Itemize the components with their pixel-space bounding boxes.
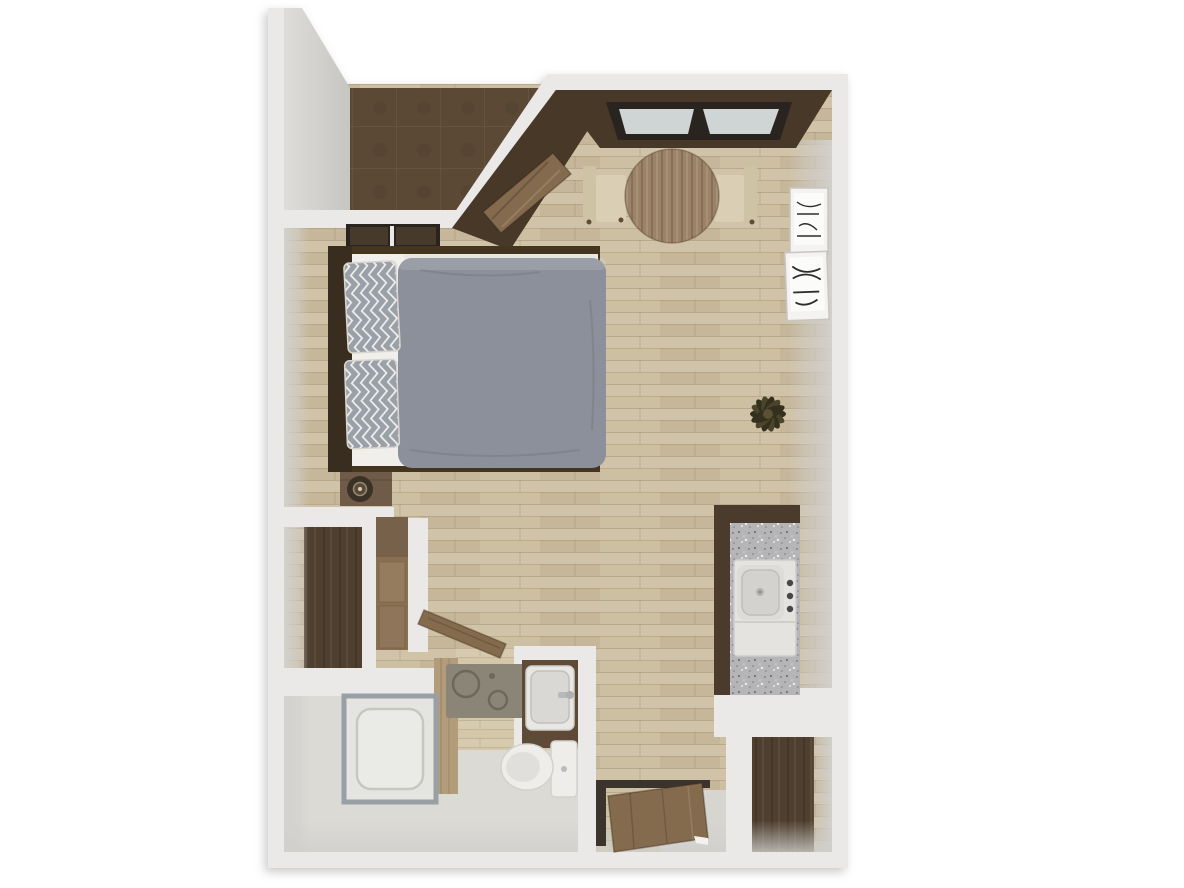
shower-tray-inner xyxy=(357,709,423,789)
outer-wall-left xyxy=(268,8,284,868)
vanity-nook-top-wall xyxy=(514,646,578,662)
sink-knob-2 xyxy=(787,593,793,599)
entry-closet-left-wall xyxy=(726,737,752,854)
chair-left-leg-2 xyxy=(619,218,624,223)
shower xyxy=(344,696,436,802)
floor-plan-stage xyxy=(0,0,1184,888)
bathroom-right-wall xyxy=(578,646,596,854)
closet-bottom-wall xyxy=(268,668,436,696)
bedroom-window-pane-right xyxy=(396,227,436,245)
left-wall-face xyxy=(284,212,310,852)
duvet-fold xyxy=(398,258,606,270)
chevron-pillow-bottom xyxy=(344,359,399,449)
bedroom-window-mullion xyxy=(390,226,394,246)
outer-wall-bottom xyxy=(268,852,848,868)
kitchenette xyxy=(714,505,800,695)
wardrobe-right-wall xyxy=(408,518,428,652)
counter-edge-left xyxy=(714,505,730,695)
outer-wall-top xyxy=(548,74,848,90)
chair-left-seat xyxy=(596,175,626,222)
wardrobe xyxy=(376,517,408,650)
toilet-flush-button xyxy=(561,766,567,772)
kitchen-sink-unit xyxy=(734,560,796,656)
kitchen-bottom-wall xyxy=(714,688,832,737)
sink-knob-1 xyxy=(787,580,793,586)
vanity xyxy=(522,660,578,748)
wall-art xyxy=(785,188,829,321)
entry-door-jamb xyxy=(596,780,606,846)
art-frame-bottom xyxy=(785,251,829,320)
art-frame-top xyxy=(790,188,828,254)
wardrobe-panel-2 xyxy=(379,606,405,648)
chair-right-leg xyxy=(750,220,755,225)
rug-dot xyxy=(489,673,495,679)
apartment-plan xyxy=(268,8,848,868)
bedroom-window-pane-left xyxy=(350,227,388,245)
toilet-seat xyxy=(506,752,540,782)
faucet-base xyxy=(566,691,574,699)
plant-center xyxy=(763,409,773,419)
rug-body xyxy=(446,664,526,718)
chevron-pillow-top xyxy=(344,261,401,354)
duvet xyxy=(398,258,606,468)
sink-drain-hole xyxy=(759,591,762,594)
round-tray-center xyxy=(358,487,362,491)
left-closet-floor xyxy=(304,524,362,672)
art-frame-bottom-paper xyxy=(789,256,825,311)
wardrobe-top-section xyxy=(376,517,408,557)
left-wall-tall-face xyxy=(284,8,350,212)
dining-window xyxy=(606,102,792,140)
bath-rug xyxy=(446,664,526,718)
closet-right-wall xyxy=(362,524,376,672)
outer-wall-right xyxy=(832,74,848,868)
round-dining-table xyxy=(625,149,719,243)
chair-right-back xyxy=(744,166,757,224)
dining-window-pane-right xyxy=(703,109,779,134)
art-frame-top-paper xyxy=(794,193,824,245)
chair-left-back xyxy=(583,166,596,224)
floor-plan-render xyxy=(0,0,1184,888)
wardrobe-panel-1 xyxy=(379,562,405,602)
dining-window-pane-left xyxy=(619,109,694,134)
double-bed xyxy=(328,246,606,472)
nightstand xyxy=(340,472,392,506)
bedroom-window xyxy=(346,224,440,248)
chair-left-leg xyxy=(587,220,592,225)
sleeping-area xyxy=(328,224,606,506)
sink-knob-3 xyxy=(787,606,793,612)
